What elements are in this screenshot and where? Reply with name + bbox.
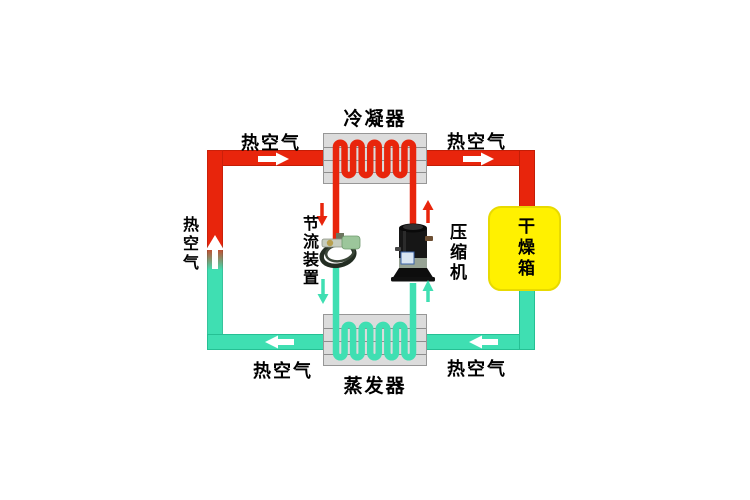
throttle-device-label: 节流装置 — [296, 215, 320, 287]
evaporator-fin — [324, 328, 426, 329]
drying-box: 干燥箱 — [488, 206, 561, 291]
condenser-box — [323, 133, 427, 184]
throttle-valve-photo — [320, 233, 360, 269]
hot-air-label-top-right: 热空气 — [447, 128, 507, 154]
condenser-fin — [324, 147, 426, 148]
condenser-label: 冷凝器 — [328, 104, 422, 131]
evaporator-fin — [324, 354, 426, 355]
refrigerant-up-arrow-cold — [423, 280, 434, 302]
hot-air-label-left-side: 热空气 — [176, 216, 200, 273]
hot-air-label-top-left: 热空气 — [241, 129, 301, 155]
evaporator-fin — [324, 341, 426, 342]
hot-air-label-bottom-right: 热空气 — [447, 355, 507, 381]
drying-box-label: 干燥箱 — [512, 217, 537, 280]
evaporator-box — [323, 314, 427, 366]
heat-pump-diagram: 干燥箱 冷凝器 蒸发器 热空气 热空气 热空气 热空气 热空气 节流装置 压缩机 — [0, 0, 750, 500]
left-air-pipe-gradient — [207, 150, 223, 350]
evaporator-label: 蒸发器 — [328, 371, 422, 398]
condenser-fin — [324, 160, 426, 161]
compressor-photo — [391, 224, 435, 282]
hot-air-label-bottom-left: 热空气 — [253, 357, 313, 383]
refrigerant-up-arrow-hot — [423, 200, 434, 223]
diagram-overlay — [0, 0, 750, 500]
compressor-label: 压缩机 — [444, 223, 469, 283]
condenser-fin — [324, 172, 426, 173]
